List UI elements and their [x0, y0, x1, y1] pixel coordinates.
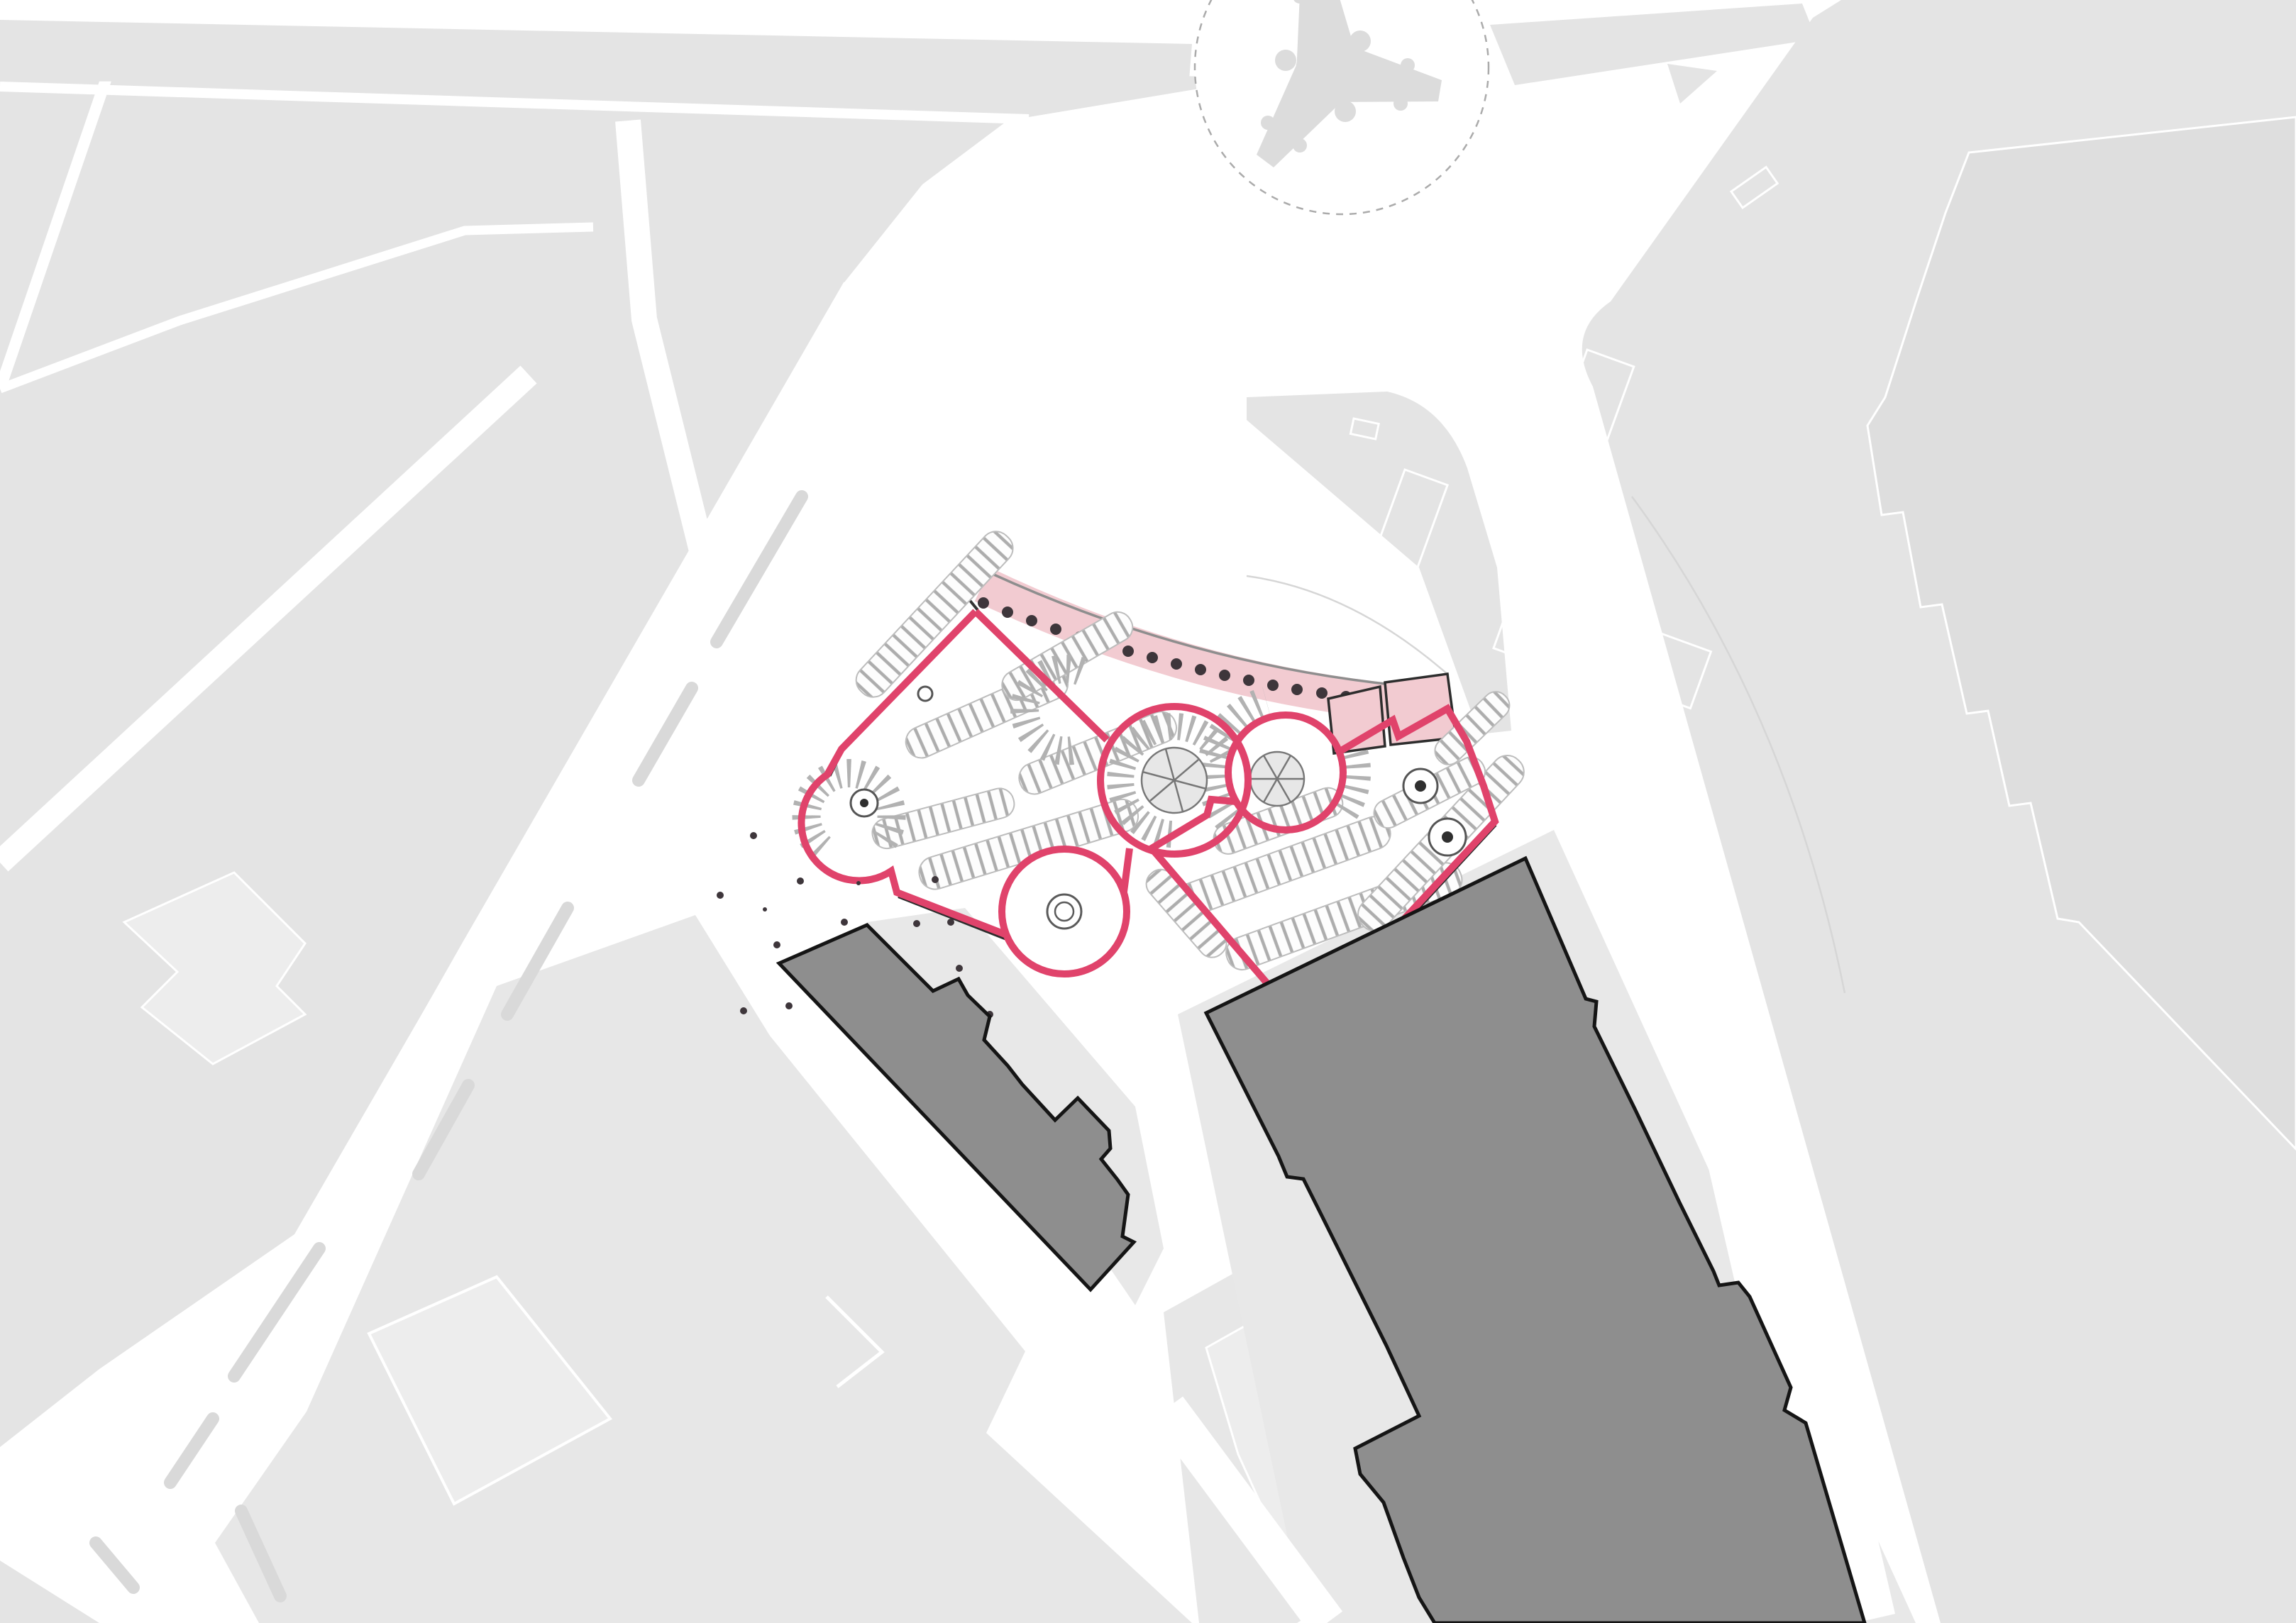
fountain-circle: [1002, 849, 1127, 974]
site-plan-canvas: [0, 0, 2296, 1623]
site-plan-svg: [0, 0, 2296, 1623]
